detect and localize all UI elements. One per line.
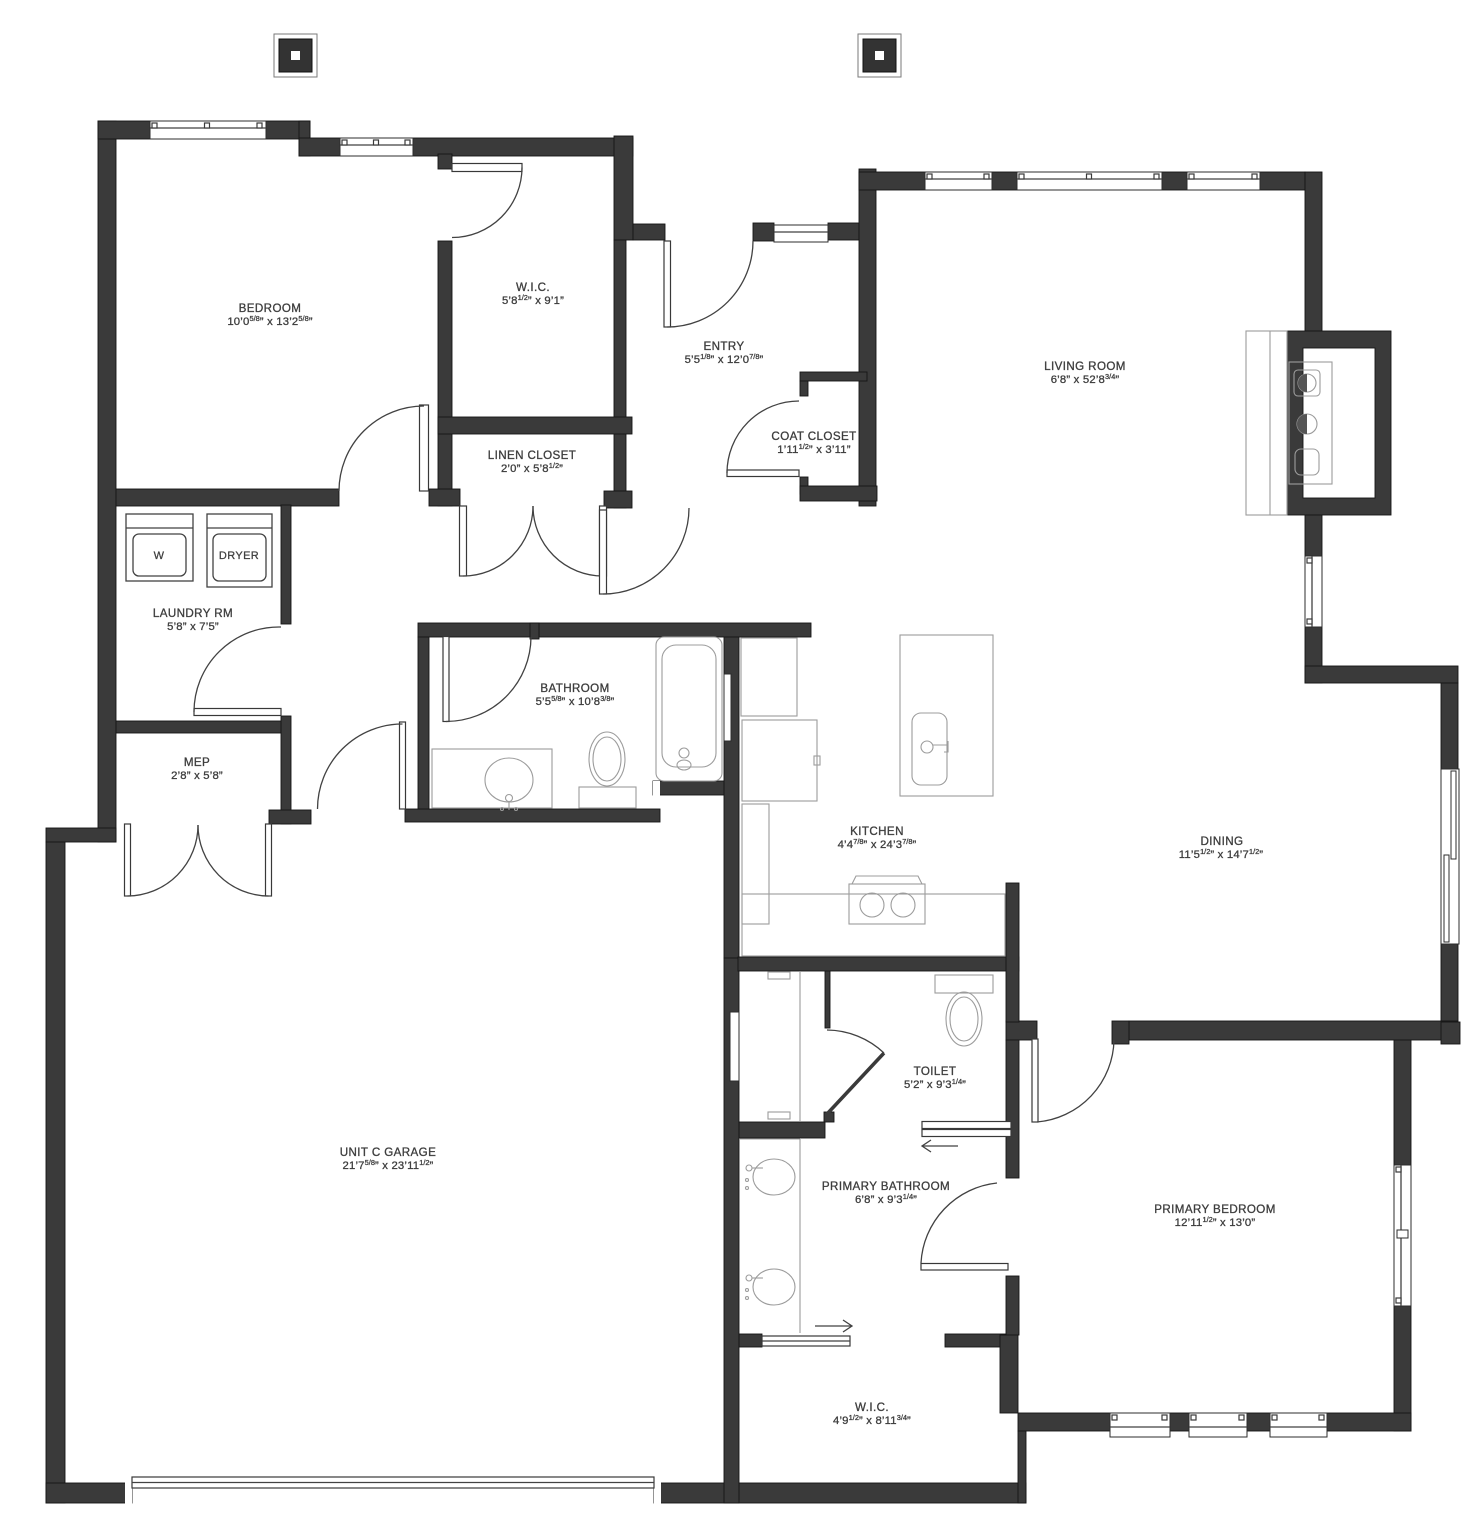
- svg-text:PRIMARY BEDROOM: PRIMARY BEDROOM: [1154, 1203, 1276, 1216]
- svg-text:5’8” x 7’5”: 5’8” x 7’5”: [167, 621, 219, 633]
- svg-text:1’111/2” x 3’11”: 1’111/2” x 3’11”: [777, 442, 850, 456]
- svg-text:TOILET: TOILET: [914, 1065, 957, 1078]
- svg-text:PRIMARY BATHROOM: PRIMARY BATHROOM: [822, 1180, 950, 1193]
- svg-text:LINEN CLOSET: LINEN CLOSET: [488, 449, 577, 462]
- svg-text:COAT CLOSET: COAT CLOSET: [771, 430, 856, 443]
- svg-text:2’8” x 5’8”: 2’8” x 5’8”: [171, 770, 223, 782]
- svg-text:5’81/2” x 9’1”: 5’81/2” x 9’1”: [502, 293, 564, 307]
- svg-text:LAUNDRY RM: LAUNDRY RM: [153, 607, 233, 620]
- svg-text:BEDROOM: BEDROOM: [239, 302, 302, 315]
- svg-text:12’111/2” x 13’0”: 12’111/2” x 13’0”: [1175, 1215, 1256, 1229]
- svg-text:W.I.C.: W.I.C.: [855, 1401, 889, 1414]
- svg-text:W: W: [154, 550, 165, 562]
- svg-text:DRYER: DRYER: [219, 550, 259, 562]
- svg-text:MEP: MEP: [184, 756, 210, 769]
